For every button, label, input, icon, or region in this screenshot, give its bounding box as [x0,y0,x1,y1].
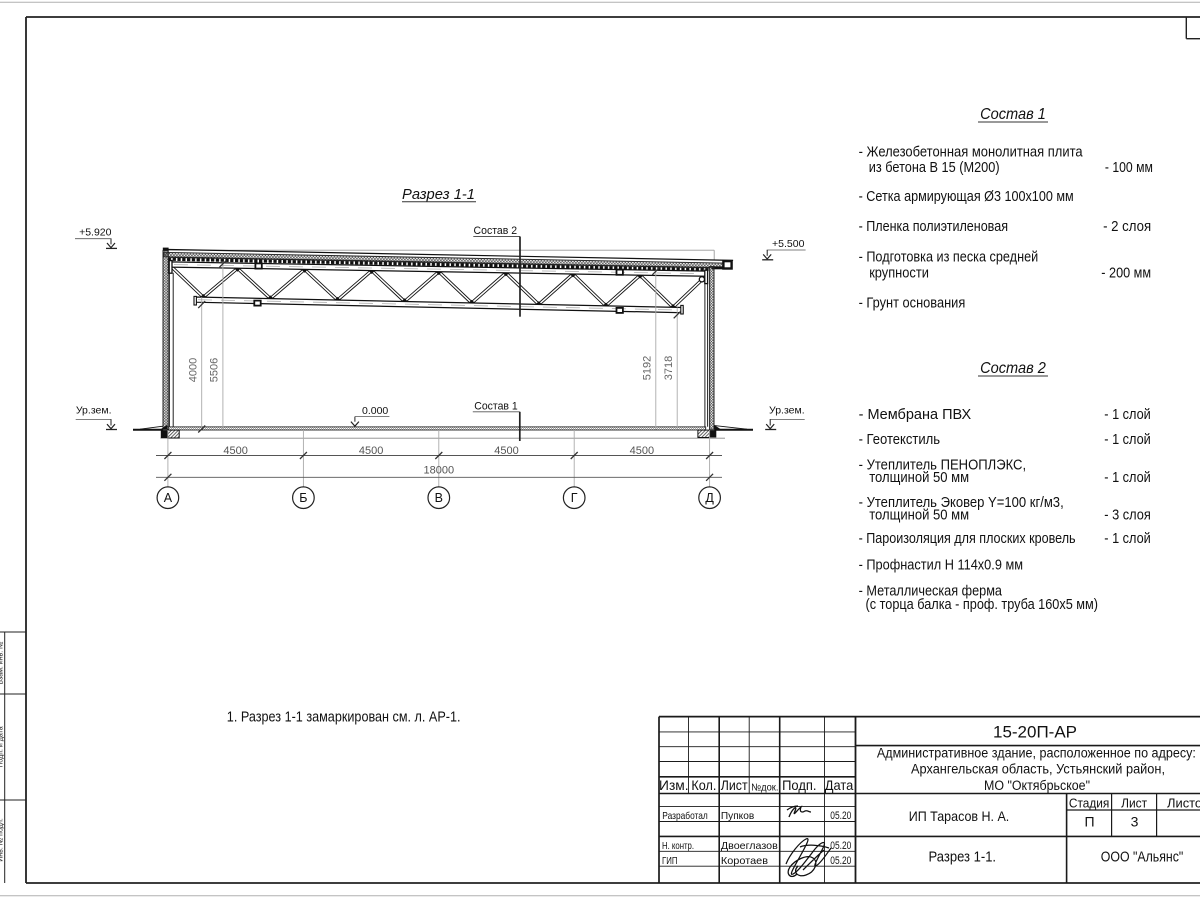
svg-text:Коротаев: Коротаев [721,855,769,867]
svg-text:4500: 4500 [359,445,383,457]
svg-text:Состав 2: Состав 2 [474,225,518,237]
svg-text:- 2 слоя: - 2 слоя [1103,218,1151,235]
svg-text:- 3 слоя: - 3 слоя [1104,507,1151,524]
svg-text:ИП Тарасов Н. А.: ИП Тарасов Н. А. [909,808,1010,824]
svg-text:А: А [164,491,173,505]
svg-text:Дата: Дата [825,777,854,793]
svg-text:- Сетка армирующая Ø3 100х100: - Сетка армирующая Ø3 100х100 мм [859,188,1074,205]
svg-text:Административное здание, распо: Административное здание, расположенное п… [877,745,1196,760]
svg-text:- 1 слой: - 1 слой [1104,469,1151,486]
svg-text:крупности: крупности [869,264,929,281]
svg-text:- 1 слой: - 1 слой [1104,530,1151,547]
svg-text:Состав 1: Состав 1 [474,400,518,412]
svg-text:0.000: 0.000 [362,405,388,417]
svg-text:ГИП: ГИП [662,855,678,867]
svg-text:Подп.: Подп. [782,777,816,793]
svg-text:Г: Г [571,491,578,505]
svg-text:Подп. и дата: Подп. и дата [0,726,5,767]
svg-text:Н. контр.: Н. контр. [662,840,694,852]
svg-text:- Грунт основания: - Грунт основания [859,295,966,312]
svg-text:4500: 4500 [223,445,247,457]
svg-text:- 100 мм: - 100 мм [1105,159,1153,176]
svg-text:3718: 3718 [663,356,675,380]
svg-text:Изм.: Изм. [659,777,689,793]
svg-text:Д: Д [705,491,714,505]
svg-text:Лист: Лист [1121,796,1147,811]
svg-text:из бетона В 15 (М200): из бетона В 15 (М200) [869,159,1000,176]
svg-text:1. Разрез 1-1 замаркирован см.: 1. Разрез 1-1 замаркирован см. л. АР-1. [227,709,461,726]
svg-text:- Геотекстиль: - Геотекстиль [859,431,941,448]
svg-text:ООО "Альянс": ООО "Альянс" [1101,849,1184,866]
svg-text:5506: 5506 [209,358,221,382]
svg-text:05.20: 05.20 [830,810,851,822]
svg-text:Состав 1: Состав 1 [980,106,1046,123]
svg-text:Состав 2: Состав 2 [980,360,1046,377]
svg-text:Б: Б [299,491,307,505]
svg-text:05.20: 05.20 [830,855,851,867]
svg-text:Кол.: Кол. [691,777,716,793]
svg-text:- 200 мм: - 200 мм [1101,264,1151,281]
svg-text:4500: 4500 [630,445,654,457]
svg-text:- 1 слой: - 1 слой [1104,406,1151,423]
svg-text:15-20П-АР: 15-20П-АР [993,723,1077,742]
svg-text:толщиной 50 мм: толщиной 50 мм [869,469,969,486]
svg-text:Ур.зем.: Ур.зем. [769,405,805,417]
svg-text:05.20: 05.20 [830,840,851,852]
svg-text:Разработал: Разработал [662,810,708,822]
svg-text:Лист: Лист [721,777,748,793]
svg-text:В: В [435,491,443,505]
svg-text:- Мембрана ПВХ: - Мембрана ПВХ [859,406,972,423]
svg-text:18000: 18000 [424,464,455,476]
svg-text:4500: 4500 [494,445,518,457]
svg-text:(с торца балка - проф. труба 1: (с торца балка - проф. труба 160х5 мм) [866,596,1099,613]
svg-text:Листов: Листов [1167,796,1200,811]
svg-text:Взам. инв. №: Взам. инв. № [0,641,5,684]
svg-text:5192: 5192 [642,356,654,380]
svg-text:№док.: №док. [751,783,778,794]
svg-text:Пупков: Пупков [721,810,755,822]
svg-text:4000: 4000 [188,358,200,382]
svg-text:+5.920: +5.920 [79,227,112,239]
svg-text:Ур.зем.: Ур.зем. [76,405,112,417]
svg-text:+5.500: +5.500 [772,238,805,250]
svg-text:3: 3 [1131,814,1139,830]
svg-text:- Подготовка из песка средней: - Подготовка из песка средней [859,248,1039,265]
svg-text:П: П [1084,814,1094,830]
svg-text:Архангельская область, Устьянс: Архангельская область, Устьянский район, [911,762,1165,777]
svg-text:- 1 слой: - 1 слой [1104,431,1151,448]
svg-text:МО "Октябрьское": МО "Октябрьское" [984,778,1090,793]
svg-text:Стадия: Стадия [1069,796,1109,811]
svg-text:Разрез 1-1.: Разрез 1-1. [929,849,997,866]
svg-text:- Профнастил Н 114х0.9 мм: - Профнастил Н 114х0.9 мм [859,556,1023,573]
svg-text:Инв. № подл.: Инв. № подл. [0,818,5,862]
svg-text:- Пленка полиэтиленовая: - Пленка полиэтиленовая [859,218,1008,235]
svg-text:толщиной 50 мм: толщиной 50 мм [869,507,969,524]
svg-text:- Пароизоляция для плоских кро: - Пароизоляция для плоских кровель [859,530,1076,547]
svg-text:Двоеглазов: Двоеглазов [721,840,778,852]
svg-text:Разрез 1-1: Разрез 1-1 [402,187,475,203]
